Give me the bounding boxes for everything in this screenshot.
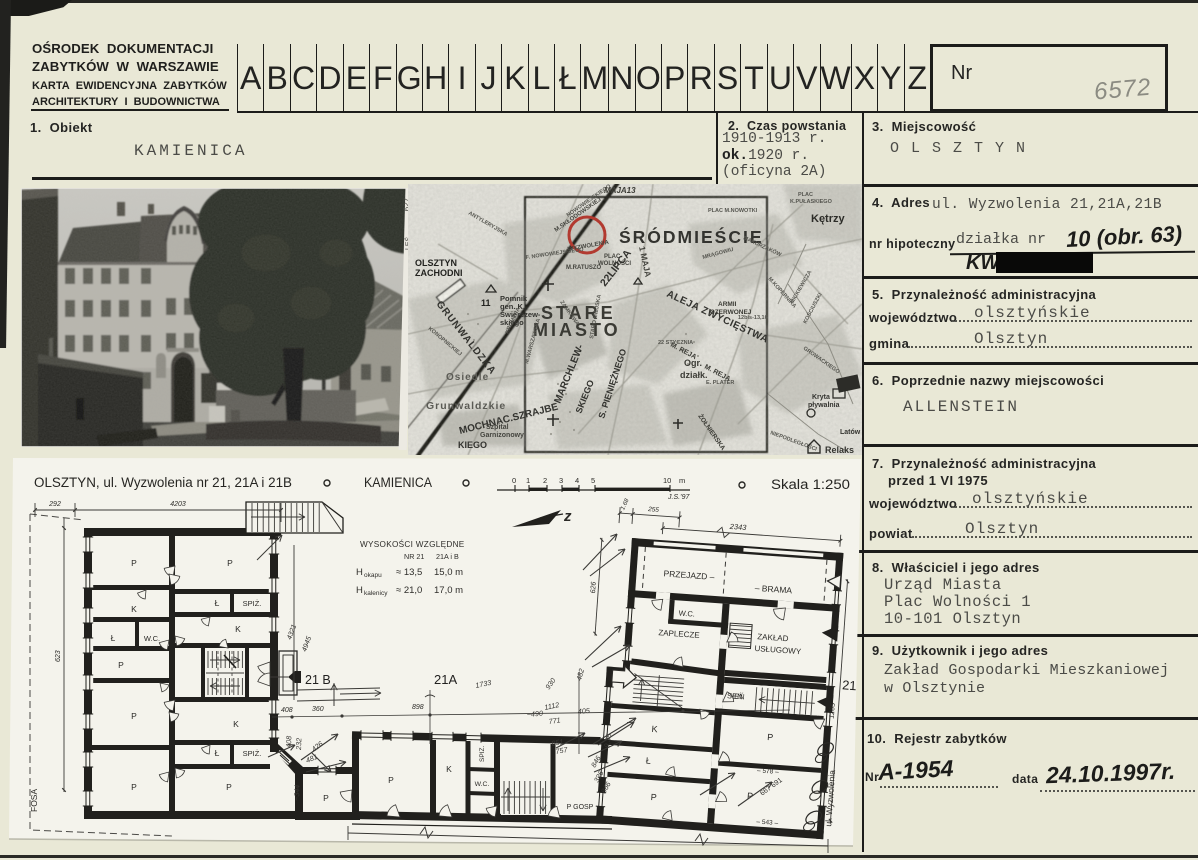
svg-text:405: 405 bbox=[577, 706, 591, 716]
svg-text:Kryta: Kryta bbox=[812, 394, 830, 401]
svg-text:P: P bbox=[227, 558, 233, 568]
svg-text:11: 11 bbox=[481, 298, 491, 308]
svg-text:Ł: Ł bbox=[215, 598, 220, 608]
svg-text:Osiedle: Osiedle bbox=[446, 372, 489, 383]
svg-text:P: P bbox=[131, 711, 137, 721]
svg-text:NR 21: NR 21 bbox=[404, 552, 424, 561]
svg-text:K: K bbox=[446, 764, 452, 774]
svg-text:K: K bbox=[235, 624, 241, 634]
svg-text:Kętrzy: Kętrzy bbox=[811, 213, 846, 225]
svg-text:H: H bbox=[356, 567, 363, 578]
svg-text:898: 898 bbox=[412, 704, 424, 711]
svg-text:KIEGO: KIEGO bbox=[458, 440, 487, 450]
svg-text:KAMIENICA: KAMIENICA bbox=[364, 475, 432, 490]
svg-text:292: 292 bbox=[48, 501, 61, 508]
svg-text:działk.: działk. bbox=[680, 370, 708, 380]
svg-text:H: H bbox=[356, 585, 363, 596]
svg-text:P GOSP: P GOSP bbox=[567, 804, 594, 811]
svg-text:0: 0 bbox=[512, 476, 516, 485]
svg-text:Latów: Latów bbox=[840, 429, 861, 436]
svg-text:21: 21 bbox=[842, 677, 857, 693]
svg-text:21A: 21A bbox=[434, 672, 457, 687]
svg-text:P: P bbox=[650, 792, 657, 802]
svg-text:4203: 4203 bbox=[170, 501, 186, 508]
svg-text:P: P bbox=[226, 782, 232, 792]
svg-text:OLSZTYN, ul. Wyzwolenia nr 21: OLSZTYN, ul. Wyzwolenia nr 21, 21A i 21B bbox=[34, 475, 292, 490]
svg-text:W.C.: W.C. bbox=[144, 634, 160, 643]
svg-text:SIEŃ: SIEŃ bbox=[727, 691, 745, 701]
svg-text:K.PUŁASKIEGO: K.PUŁASKIEGO bbox=[790, 199, 833, 205]
svg-text:626: 626 bbox=[590, 581, 598, 593]
svg-text:Ł: Ł bbox=[645, 756, 651, 766]
svg-text:K: K bbox=[131, 604, 137, 614]
svg-text:2343: 2343 bbox=[728, 522, 747, 532]
svg-text:FOSA: FOSA bbox=[29, 789, 39, 812]
svg-text:OLSZTYN: OLSZTYN bbox=[415, 258, 457, 268]
svg-text:SPIZ.: SPIZ. bbox=[479, 746, 486, 762]
svg-text:W.C.: W.C. bbox=[475, 781, 490, 788]
svg-text:360: 360 bbox=[312, 706, 324, 713]
svg-text:SPIŻ.: SPIŻ. bbox=[243, 599, 262, 608]
svg-text:ŚRÓDMIEŚCIE: ŚRÓDMIEŚCIE bbox=[619, 226, 764, 247]
svg-text:12bis-13,16: 12bis-13,16 bbox=[738, 315, 768, 321]
svg-text:22 STYCZNIA: 22 STYCZNIA bbox=[658, 340, 693, 346]
svg-text:Grunwaldzkie: Grunwaldzkie bbox=[426, 400, 506, 412]
svg-text:Garnizonowy: Garnizonowy bbox=[480, 432, 524, 439]
svg-text:771: 771 bbox=[548, 715, 561, 726]
svg-text:K: K bbox=[651, 724, 658, 734]
svg-text:10: 10 bbox=[663, 476, 671, 485]
svg-text:P: P bbox=[767, 732, 774, 742]
svg-text:17,0 m: 17,0 m bbox=[434, 585, 463, 596]
svg-text:ARMII: ARMII bbox=[718, 301, 737, 308]
svg-text:PLAC M.NOWOTKI: PLAC M.NOWOTKI bbox=[708, 208, 758, 214]
svg-text:PLAC: PLAC bbox=[798, 192, 813, 198]
svg-text:3: 3 bbox=[559, 476, 563, 485]
svg-text:5: 5 bbox=[591, 476, 595, 485]
svg-text:Ł: Ł bbox=[215, 748, 220, 758]
svg-text:2: 2 bbox=[543, 476, 547, 485]
svg-text:≈ 13,5: ≈ 13,5 bbox=[396, 567, 422, 578]
svg-text:15,0 m: 15,0 m bbox=[434, 567, 463, 578]
svg-text:z: z bbox=[563, 508, 572, 525]
svg-text:WYSOKOŚCI WZGLĘDNE: WYSOKOŚCI WZGLĘDNE bbox=[360, 538, 465, 549]
svg-text:P: P bbox=[118, 660, 124, 670]
svg-text:255: 255 bbox=[647, 506, 660, 514]
svg-text:~344: ~344 bbox=[292, 785, 302, 802]
svg-text:okapu: okapu bbox=[364, 572, 382, 579]
svg-text:kalenicy: kalenicy bbox=[364, 590, 388, 597]
svg-text:ZACHODNI: ZACHODNI bbox=[415, 268, 463, 278]
svg-text:623: 623 bbox=[55, 650, 62, 662]
svg-text:21 B: 21 B bbox=[305, 673, 331, 687]
svg-text:~490: ~490 bbox=[526, 709, 543, 719]
svg-text:Skala 1:250: Skala 1:250 bbox=[771, 477, 850, 492]
svg-text:4: 4 bbox=[575, 476, 579, 485]
svg-text:K: K bbox=[233, 719, 239, 729]
svg-text:408: 408 bbox=[281, 707, 293, 714]
svg-text:1: 1 bbox=[526, 476, 530, 485]
svg-text:SPIŻ.: SPIŻ. bbox=[243, 749, 262, 758]
svg-text:Ł: Ł bbox=[111, 634, 116, 643]
svg-text:≈ 21,0: ≈ 21,0 bbox=[396, 585, 422, 596]
svg-text:P: P bbox=[131, 782, 137, 792]
svg-text:408: 408 bbox=[284, 736, 293, 748]
svg-text:232: 232 bbox=[294, 738, 303, 751]
svg-text:pływalnia: pływalnia bbox=[808, 402, 840, 409]
svg-text:Szpital: Szpital bbox=[486, 424, 509, 431]
svg-text:E. PLATER: E. PLATER bbox=[706, 380, 734, 386]
svg-text:J.S.’97: J.S.’97 bbox=[667, 494, 691, 501]
svg-text:P: P bbox=[131, 558, 137, 568]
svg-text:m: m bbox=[679, 476, 685, 485]
svg-text:P: P bbox=[323, 793, 329, 803]
svg-text:P: P bbox=[388, 775, 394, 785]
svg-text:1205: 1205 bbox=[829, 703, 837, 719]
svg-text:21A i B: 21A i B bbox=[436, 552, 459, 561]
svg-text:W.C.: W.C. bbox=[678, 608, 695, 618]
svg-text:M.RATUSZO: M.RATUSZO bbox=[566, 265, 602, 271]
